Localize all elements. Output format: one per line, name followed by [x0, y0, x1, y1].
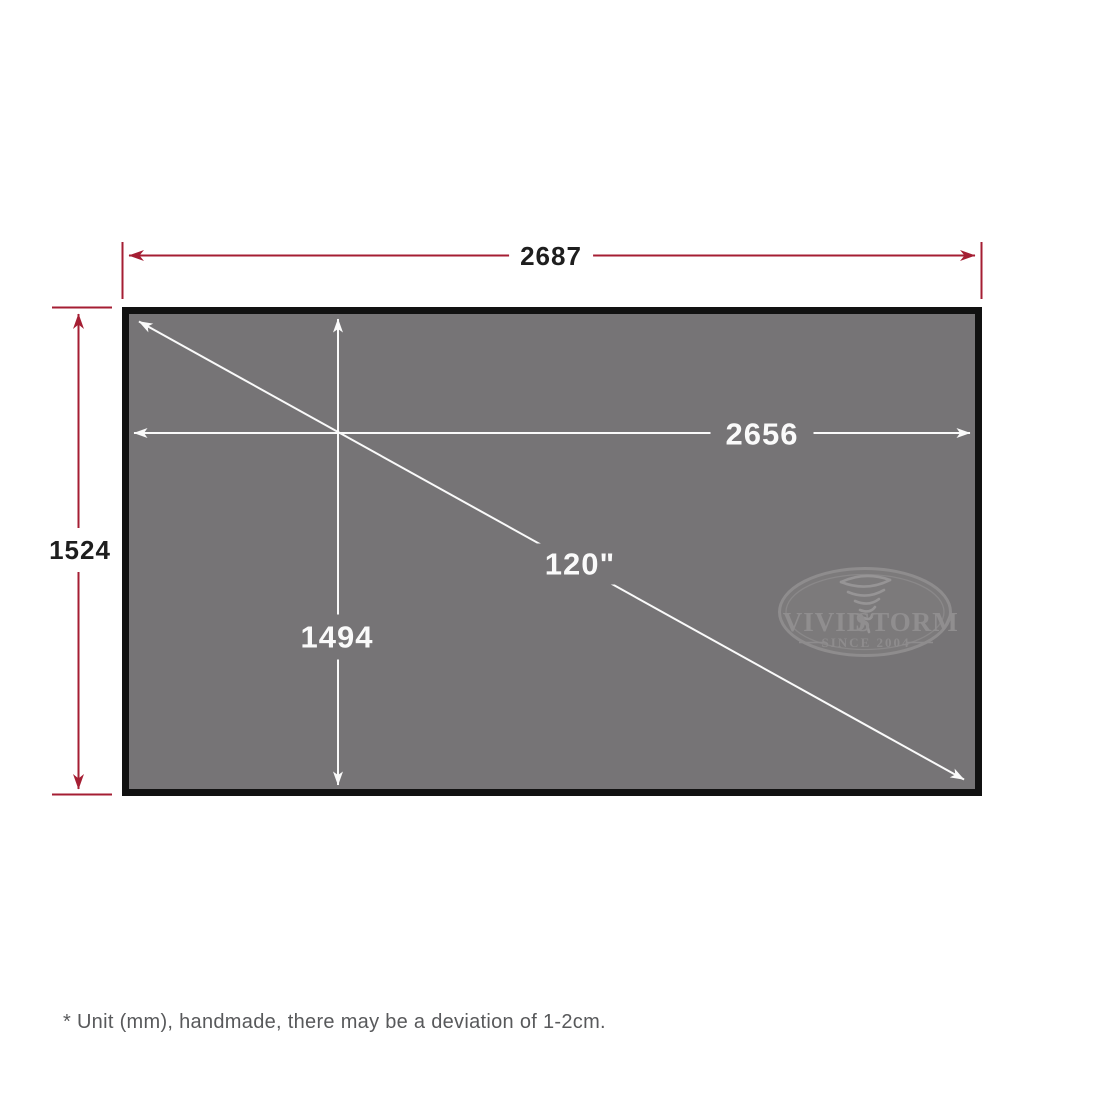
outer-height-value: 1524	[44, 528, 116, 572]
vividstorm-logo: VIVID STORM SINCE 2004	[773, 566, 957, 658]
logo-text-storm: STORM	[855, 607, 957, 637]
logo-since-text: SINCE 2004	[822, 635, 911, 650]
diagonal-size-value: 120"	[534, 544, 626, 585]
product-dimension-diagram: VIVID STORM SINCE 2004	[0, 0, 1096, 1096]
unit-footnote: * Unit (mm), handmade, there may be a de…	[63, 1011, 606, 1034]
inner-height-value: 1494	[292, 615, 383, 660]
outer-width-value: 2687	[509, 241, 593, 271]
inner-width-value: 2656	[711, 416, 814, 453]
